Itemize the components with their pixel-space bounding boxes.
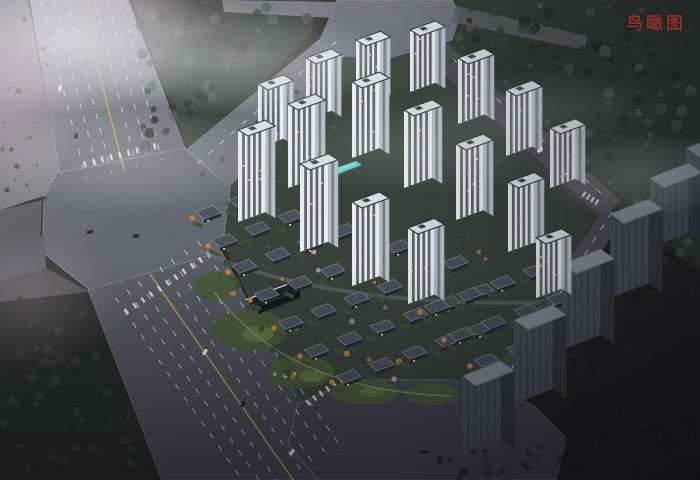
view-label: 鸟瞰图 [626,9,686,34]
aerial-render: 鸟瞰图 [0,0,700,480]
fog-layer [0,0,700,480]
scene-canvas [0,0,700,480]
vignette-right [0,0,700,480]
